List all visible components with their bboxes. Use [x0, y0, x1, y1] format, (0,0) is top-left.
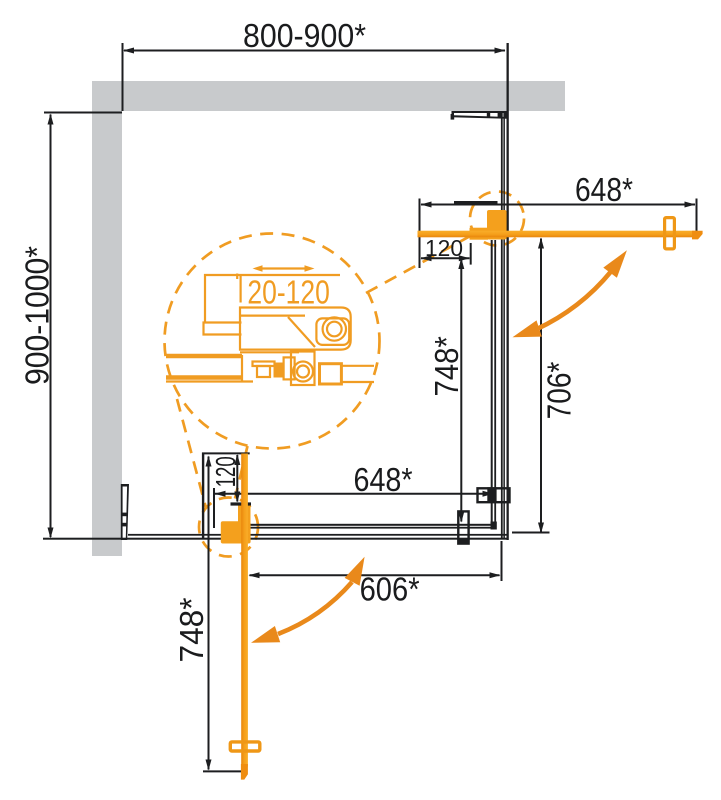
- svg-text:606*: 606*: [360, 572, 420, 609]
- svg-text:648*: 648*: [575, 172, 633, 209]
- svg-text:120: 120: [210, 456, 241, 487]
- svg-text:748*: 748*: [174, 598, 211, 663]
- svg-text:706*: 706*: [542, 362, 579, 420]
- svg-text:800-900*: 800-900*: [243, 18, 366, 55]
- svg-text:748*: 748*: [429, 336, 466, 396]
- svg-text:648*: 648*: [354, 462, 413, 499]
- svg-text:20-120: 20-120: [247, 275, 329, 312]
- svg-text:900-1000*: 900-1000*: [20, 246, 57, 385]
- svg-text:120: 120: [425, 235, 463, 261]
